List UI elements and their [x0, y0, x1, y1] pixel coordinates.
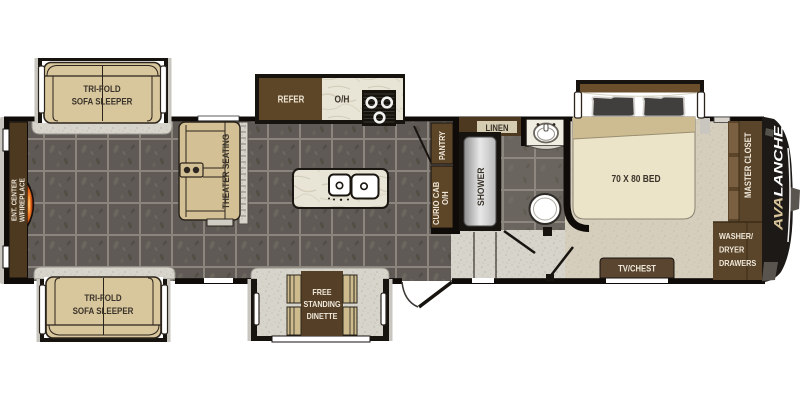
- svg-text:REFER: REFER: [278, 93, 305, 104]
- svg-text:THEATER SEATING: THEATER SEATING: [221, 133, 232, 209]
- svg-text:O/H: O/H: [335, 94, 350, 106]
- svg-text:DRYER: DRYER: [719, 245, 745, 255]
- svg-text:W/FIREPLACE: W/FIREPLACE: [19, 178, 27, 222]
- svg-text:SHOWER: SHOWER: [476, 167, 487, 206]
- svg-text:WASHER/: WASHER/: [719, 231, 754, 241]
- svg-text:ENT. CENTER: ENT. CENTER: [11, 179, 19, 221]
- svg-text:70 X 80 BED: 70 X 80 BED: [611, 173, 660, 184]
- svg-text:SOFA SLEEPER: SOFA SLEEPER: [72, 96, 133, 107]
- svg-text:LINEN: LINEN: [486, 122, 509, 133]
- svg-text:TRI-FOLD: TRI-FOLD: [84, 292, 121, 303]
- svg-text:TRI-FOLD: TRI-FOLD: [83, 83, 120, 94]
- svg-text:SOFA SLEEPER: SOFA SLEEPER: [73, 305, 134, 316]
- svg-text:AVALANCHE: AVALANCHE: [774, 126, 786, 232]
- svg-text:O/H: O/H: [441, 191, 450, 205]
- svg-text:STANDING: STANDING: [303, 299, 340, 309]
- svg-text:PANTRY: PANTRY: [437, 130, 447, 160]
- svg-text:TV/CHEST: TV/CHEST: [618, 263, 656, 274]
- svg-text:DRAWERS: DRAWERS: [719, 258, 756, 268]
- svg-text:DINETTE: DINETTE: [307, 311, 338, 321]
- svg-text:FREE: FREE: [312, 287, 331, 297]
- svg-text:MASTER CLOSET: MASTER CLOSET: [742, 133, 753, 198]
